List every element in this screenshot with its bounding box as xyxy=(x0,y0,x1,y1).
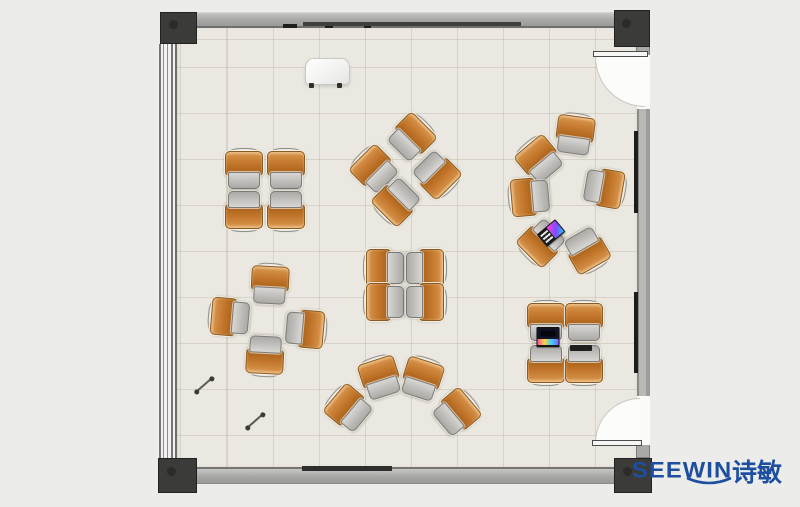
desk-tablet-surface xyxy=(406,286,423,318)
whiteboard-right-wall-upper xyxy=(634,131,638,213)
laptop-keyboard xyxy=(538,339,559,345)
whiteboard-wheel xyxy=(337,83,342,88)
desk-chair-unit xyxy=(363,282,405,322)
corner-post-top-right xyxy=(614,10,650,47)
whiteboard-top-wall xyxy=(303,22,521,26)
desk-chair-unit xyxy=(224,190,264,232)
desk-tablet-surface xyxy=(568,324,600,341)
wall-bottom xyxy=(197,467,614,484)
mobile-whiteboard xyxy=(305,58,350,85)
desk-tablet-surface xyxy=(387,286,404,318)
brand-logo: SEEWIN 诗敏 xyxy=(620,448,800,493)
door-leaf-top xyxy=(593,51,648,57)
brand-wordmark-cjk: 诗敏 xyxy=(732,453,782,489)
desk-chair-unit xyxy=(224,148,264,190)
desk-chair-unit xyxy=(266,148,306,190)
tablet xyxy=(570,345,592,351)
laptop-screen xyxy=(539,329,558,338)
desk-tablet-surface xyxy=(249,335,282,354)
corner-post-top-left xyxy=(160,12,197,44)
desk-chair-unit xyxy=(506,175,551,219)
window-wall-left xyxy=(158,44,177,458)
wall-right xyxy=(637,107,650,398)
desk-tablet-surface xyxy=(530,345,562,362)
desk-chair-unit xyxy=(283,307,328,351)
desk-chair-unit xyxy=(552,110,597,157)
desk-chair-unit xyxy=(249,262,291,306)
desk-tablet-surface xyxy=(228,172,260,189)
desk-chair-unit xyxy=(564,300,604,342)
logo-swoosh-icon xyxy=(686,477,732,486)
desk-chair-unit xyxy=(405,282,447,322)
desk-tablet-surface xyxy=(253,286,286,305)
desk-tablet-surface xyxy=(285,311,305,344)
desk-tablet-surface xyxy=(387,252,404,284)
wall-mount-tick xyxy=(283,24,297,28)
laptop xyxy=(537,327,560,347)
desk-tablet-surface xyxy=(270,191,302,208)
desk-tablet-surface xyxy=(270,172,302,189)
desk-tablet-surface xyxy=(531,179,551,212)
desk-tablet-surface xyxy=(228,191,260,208)
desk-tablet-surface xyxy=(406,252,423,284)
floorplan-canvas: SEEWIN 诗敏 xyxy=(0,0,800,507)
desk-chair-unit xyxy=(206,295,251,339)
desk-chair-unit xyxy=(266,190,306,232)
desk-chair-unit xyxy=(581,165,629,212)
desk-chair-unit xyxy=(526,344,566,386)
whiteboard-bottom-wall xyxy=(302,466,392,471)
desk-tablet-surface xyxy=(556,135,590,156)
door-leaf-bottom xyxy=(592,440,642,446)
desk-chair-unit xyxy=(244,334,286,378)
whiteboard-right-wall-lower xyxy=(634,292,638,373)
corner-post-bottom-left xyxy=(158,458,197,493)
desk-tablet-surface xyxy=(231,301,251,334)
whiteboard-wheel xyxy=(309,83,314,88)
